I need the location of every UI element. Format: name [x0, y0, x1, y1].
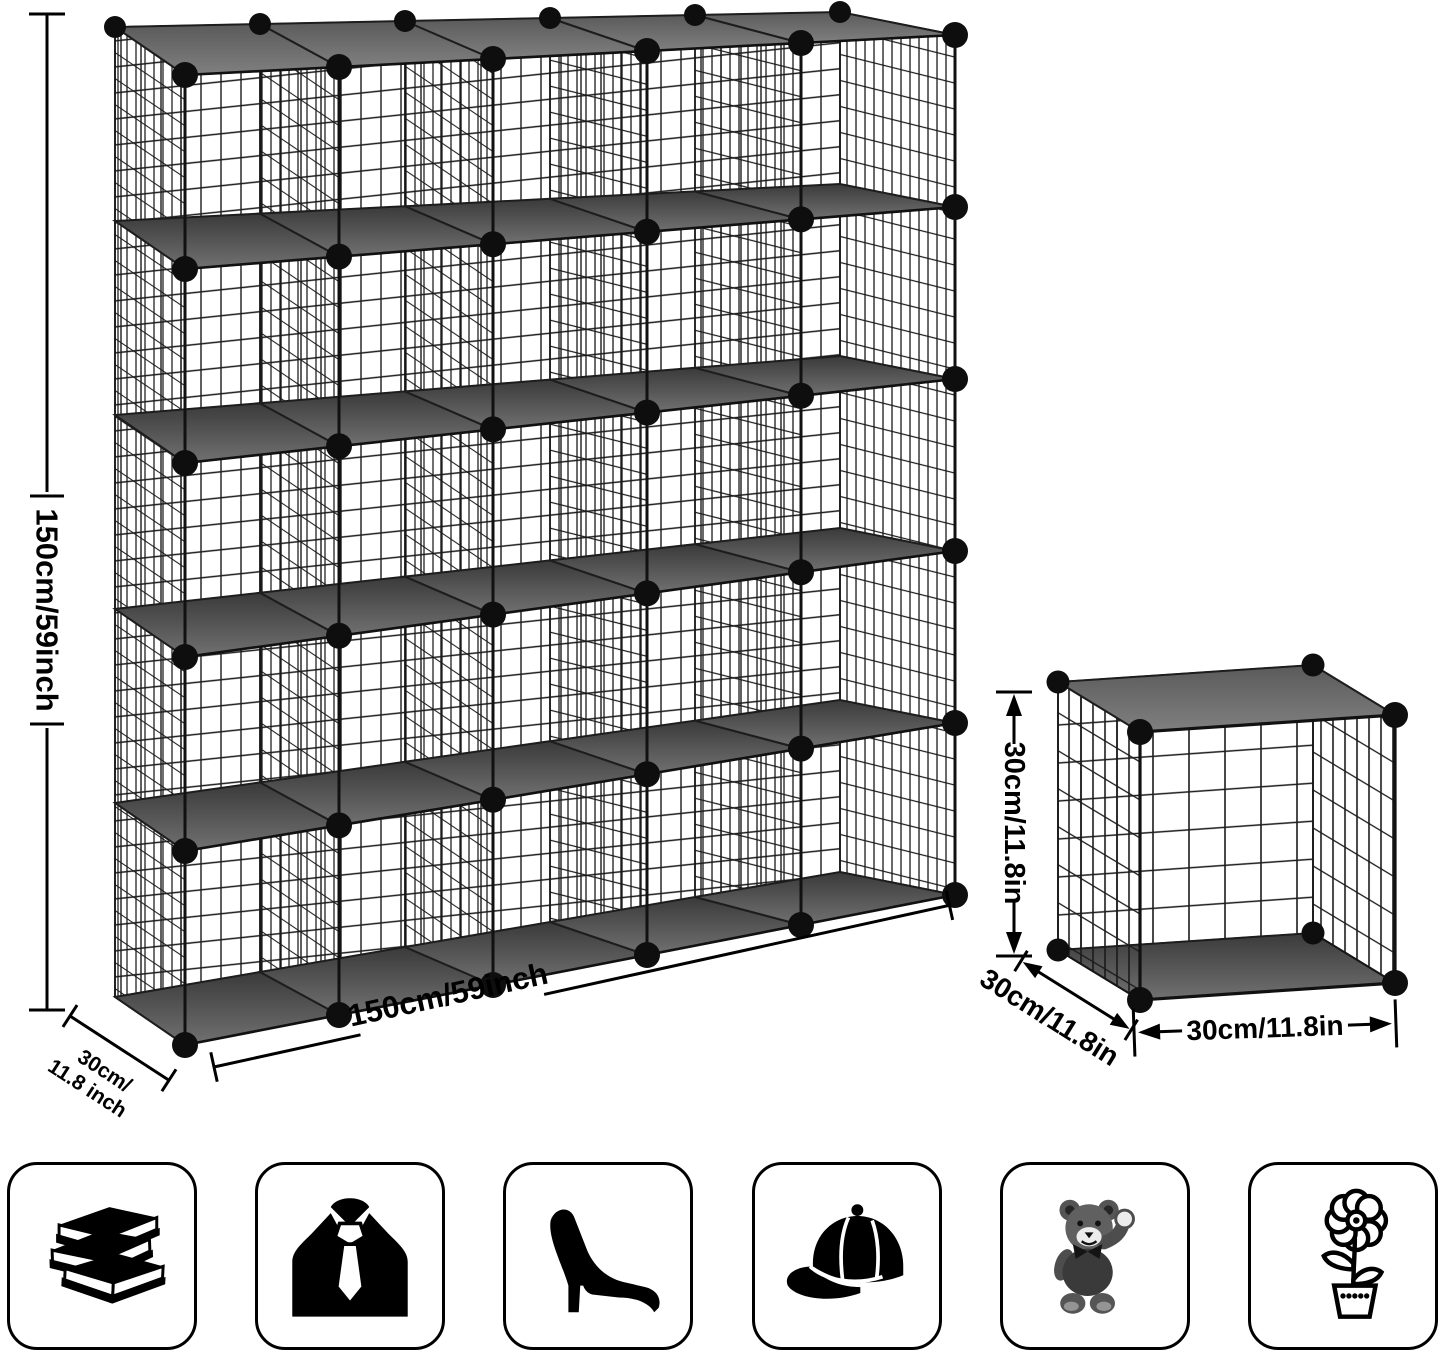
category-hats: [752, 1162, 942, 1350]
category-books: [7, 1162, 197, 1350]
wire-grid-shelf-unit: [104, 1, 968, 1058]
storage-category-icons: [7, 1162, 1438, 1350]
cube-height-dimension: 30cm/11.8in: [996, 692, 1032, 956]
potted-flower-icon: [1269, 1182, 1417, 1330]
teddy-bear-icon: [1021, 1182, 1169, 1330]
suit-and-tie-icon: [276, 1182, 424, 1330]
category-shoes: [503, 1162, 693, 1350]
unit-height-label: 150cm/59inch: [30, 508, 65, 711]
product-dimension-page: { "colors": { "background": "#ffffff", "…: [0, 0, 1445, 1358]
high-heel-icon: [524, 1182, 672, 1330]
cube-width-label: 30cm/11.8in: [1186, 1010, 1344, 1046]
category-suit: [255, 1162, 445, 1350]
cube-height-label: 30cm/11.8in: [998, 742, 1030, 905]
unit-height-dimension: 150cm/59inch: [29, 14, 65, 1010]
category-toys: [1000, 1162, 1190, 1350]
baseball-cap-icon: [773, 1182, 921, 1330]
books-icon: [28, 1182, 176, 1330]
category-plants: [1248, 1162, 1438, 1350]
single-wire-cube: [1047, 654, 1409, 1014]
cube-width-dimension: 30cm/11.8in: [1133, 999, 1397, 1056]
dimension-diagram: 150cm/59inch 150cm/59inch 30cm/ 11.8 inc…: [0, 0, 1445, 1120]
